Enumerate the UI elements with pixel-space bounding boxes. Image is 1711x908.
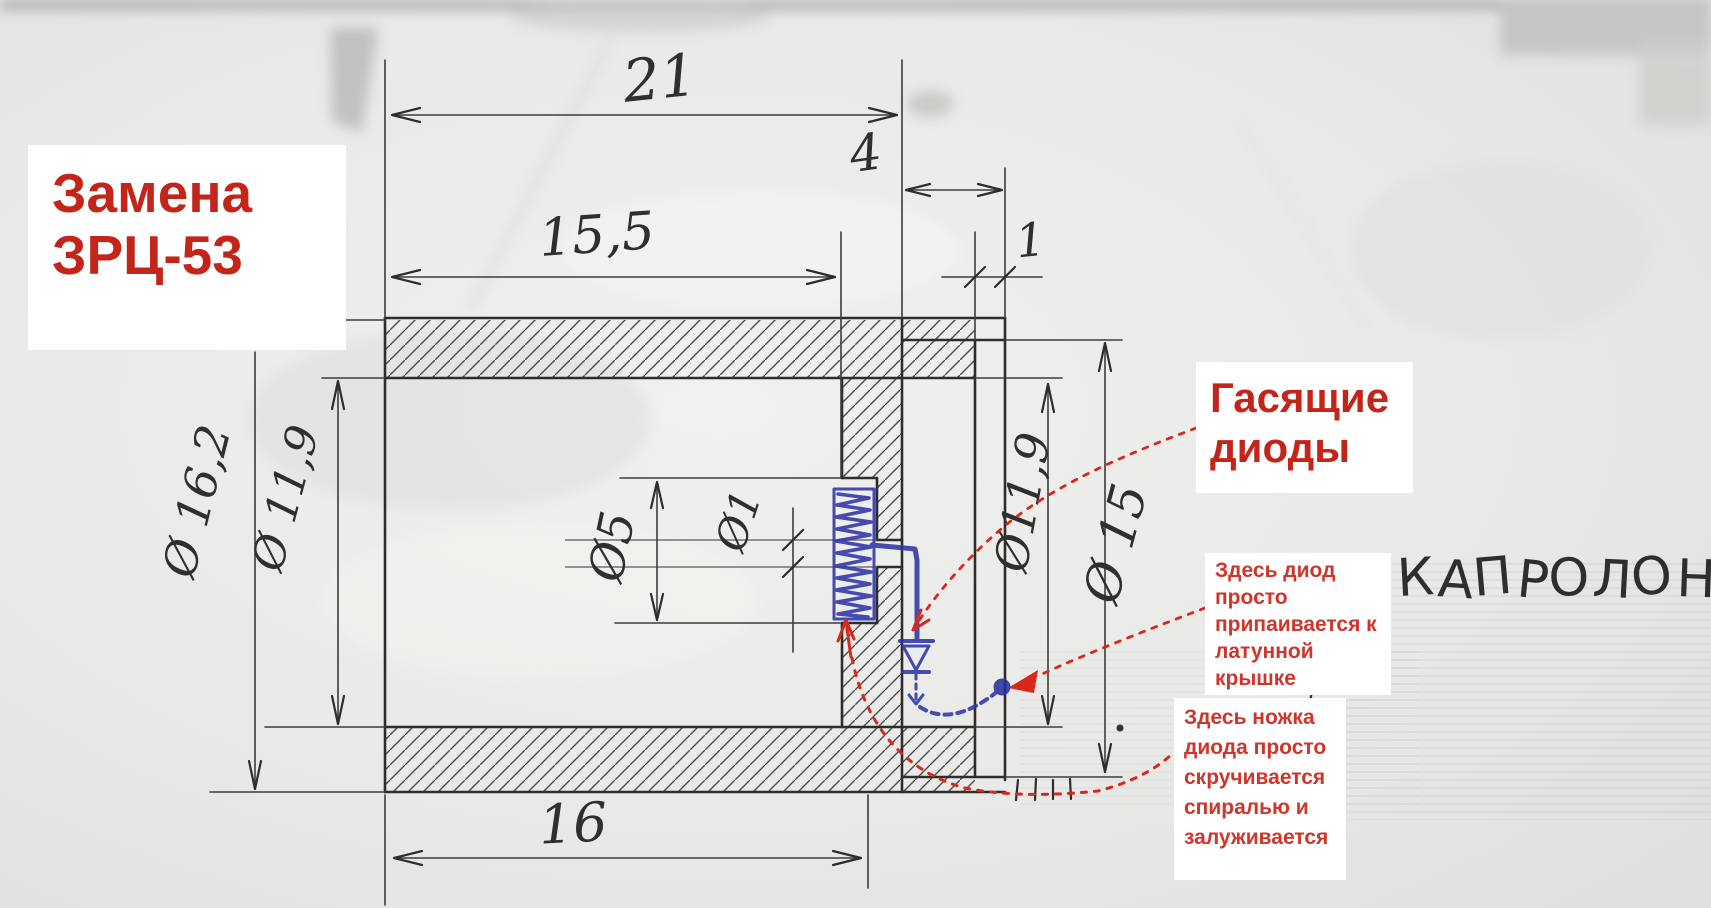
note-twist-line: скручивается	[1184, 766, 1325, 789]
note-twist-line: спиралью и	[1184, 796, 1309, 819]
drawing-svg: 21 4 15,5 1 Ø 16,2 Ø 11,9 Ø5 Ø1	[0, 0, 1711, 908]
label-replacement: Замена ЗРЦ-53	[28, 145, 346, 350]
scanned-sketch-page: 21 4 15,5 1 Ø 16,2 Ø 11,9 Ø5 Ø1	[0, 0, 1711, 908]
paper-edge-top	[0, 0, 1711, 10]
note-twist: Здесь ножка диода просто скручивается сп…	[1174, 698, 1346, 880]
label-replacement-line1: Замена	[52, 162, 253, 224]
dim-label-1: 1	[1013, 212, 1048, 269]
note-solder-line: просто	[1215, 586, 1288, 609]
note-solder-line: припаивается к	[1215, 613, 1377, 636]
note-twist-line: диода просто	[1184, 736, 1326, 759]
dim-label-21: 21	[619, 40, 701, 115]
note-twist-line: Здесь ножка	[1184, 706, 1315, 729]
note-twist-line: залуживается	[1184, 826, 1328, 849]
label-replacement-line2: ЗРЦ-53	[52, 224, 243, 286]
note-solder: Здесь диод просто припаивается к латунно…	[1205, 553, 1391, 695]
dim-label-16: 16	[537, 790, 609, 857]
label-diodes-line2: диоды	[1210, 424, 1350, 471]
solder-dot	[994, 679, 1011, 696]
label-damping-diodes: Гасящие диоды	[1196, 362, 1413, 493]
note-solder-line: латунной	[1215, 640, 1314, 663]
note-solder-line: крышке	[1215, 667, 1296, 690]
label-diodes-line1: Гасящие	[1210, 374, 1389, 421]
dim-label-15-5: 15,5	[537, 201, 657, 269]
note-solder-line: Здесь диод	[1215, 559, 1335, 582]
pencil-smudge	[906, 91, 954, 117]
material-note: КАПРОЛОН	[1396, 545, 1711, 613]
